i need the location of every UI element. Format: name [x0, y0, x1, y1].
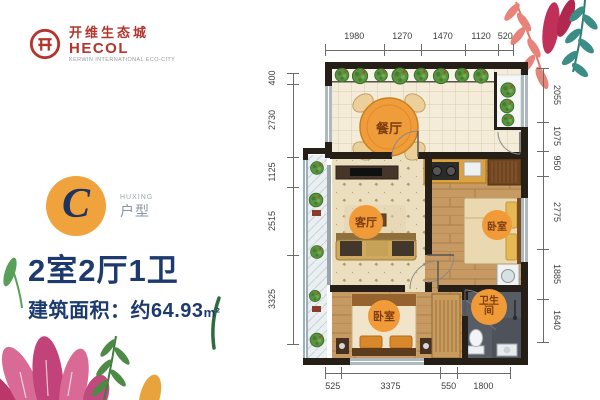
dimension-tick: [341, 367, 342, 379]
dimension-label: 1075: [552, 126, 562, 146]
dimension-tick: [457, 367, 458, 379]
dimension-label: 1270: [392, 31, 412, 41]
dimension-label: 2515: [267, 211, 277, 231]
dimension-label: 1470: [433, 31, 453, 41]
dimension-tick: [325, 367, 326, 379]
room-label-dining: 餐厅: [366, 104, 412, 150]
dimension-label: 2775: [552, 202, 562, 222]
dimension-tick: [287, 73, 299, 74]
dimension-label: 1980: [344, 31, 364, 41]
dimension-label: 1120: [471, 31, 490, 41]
dimension-line: [325, 50, 513, 51]
dimension-tick: [537, 299, 549, 300]
dimension-tick: [513, 44, 514, 56]
dimension-label: 400: [267, 71, 277, 86]
dimension-tick: [421, 44, 422, 56]
dimension-label: 550: [441, 381, 456, 391]
dimension-layer: 1980127014701120520525337555018004002730…: [0, 0, 600, 400]
headline: 2室2厅1卫 建筑面积：约64.93m²: [28, 254, 220, 323]
dimension-line: [543, 68, 544, 342]
dimension-label: 1125: [267, 162, 277, 181]
dimension-tick: [537, 176, 549, 177]
dimension-label: 1640: [552, 310, 562, 330]
dimension-label: 3325: [267, 289, 277, 309]
dimension-tick: [537, 342, 549, 343]
dimension-line: [325, 373, 510, 374]
dimension-tick: [287, 255, 299, 256]
floorplan-poster: 开维生态城 HECOL KERWIN INTERNATIONAL ECO-CIT…: [0, 0, 600, 400]
dimension-tick: [537, 68, 549, 69]
area-unit: m²: [204, 305, 221, 320]
dimension-tick: [465, 44, 466, 56]
dimension-label: 2730: [267, 110, 277, 130]
dimension-tick: [537, 249, 549, 250]
dimension-tick: [287, 157, 299, 158]
dimension-tick: [384, 44, 385, 56]
dimension-tick: [510, 367, 511, 379]
room-label-bedroom-bottom: 卧室: [368, 300, 400, 332]
dimension-tick: [325, 44, 326, 56]
room-label-bedroom-right: 卧室: [482, 210, 512, 240]
dimension-tick: [287, 84, 299, 85]
dimension-tick: [498, 44, 499, 56]
unit-layout-title: 2室2厅1卫: [28, 254, 220, 288]
room-label-living: 客厅: [349, 205, 383, 239]
dimension-line: [293, 73, 294, 344]
dimension-tick: [287, 344, 299, 345]
dimension-label: 520: [498, 31, 513, 41]
dimension-label: 2055: [552, 85, 562, 105]
area-text: 建筑面积：约64.93: [28, 300, 204, 322]
dimension-tick: [287, 187, 299, 188]
dimension-tick: [440, 367, 441, 379]
dimension-tick: [537, 151, 549, 152]
dimension-label: 1800: [473, 381, 493, 391]
building-area: 建筑面积：约64.93m²: [28, 294, 220, 323]
dimension-tick: [537, 122, 549, 123]
room-label-bathroom: 卫生间: [471, 289, 507, 325]
dimension-label: 3375: [380, 381, 400, 391]
dimension-label: 1885: [552, 264, 562, 284]
dimension-label: 525: [325, 381, 340, 391]
dimension-label: 950: [552, 156, 562, 171]
